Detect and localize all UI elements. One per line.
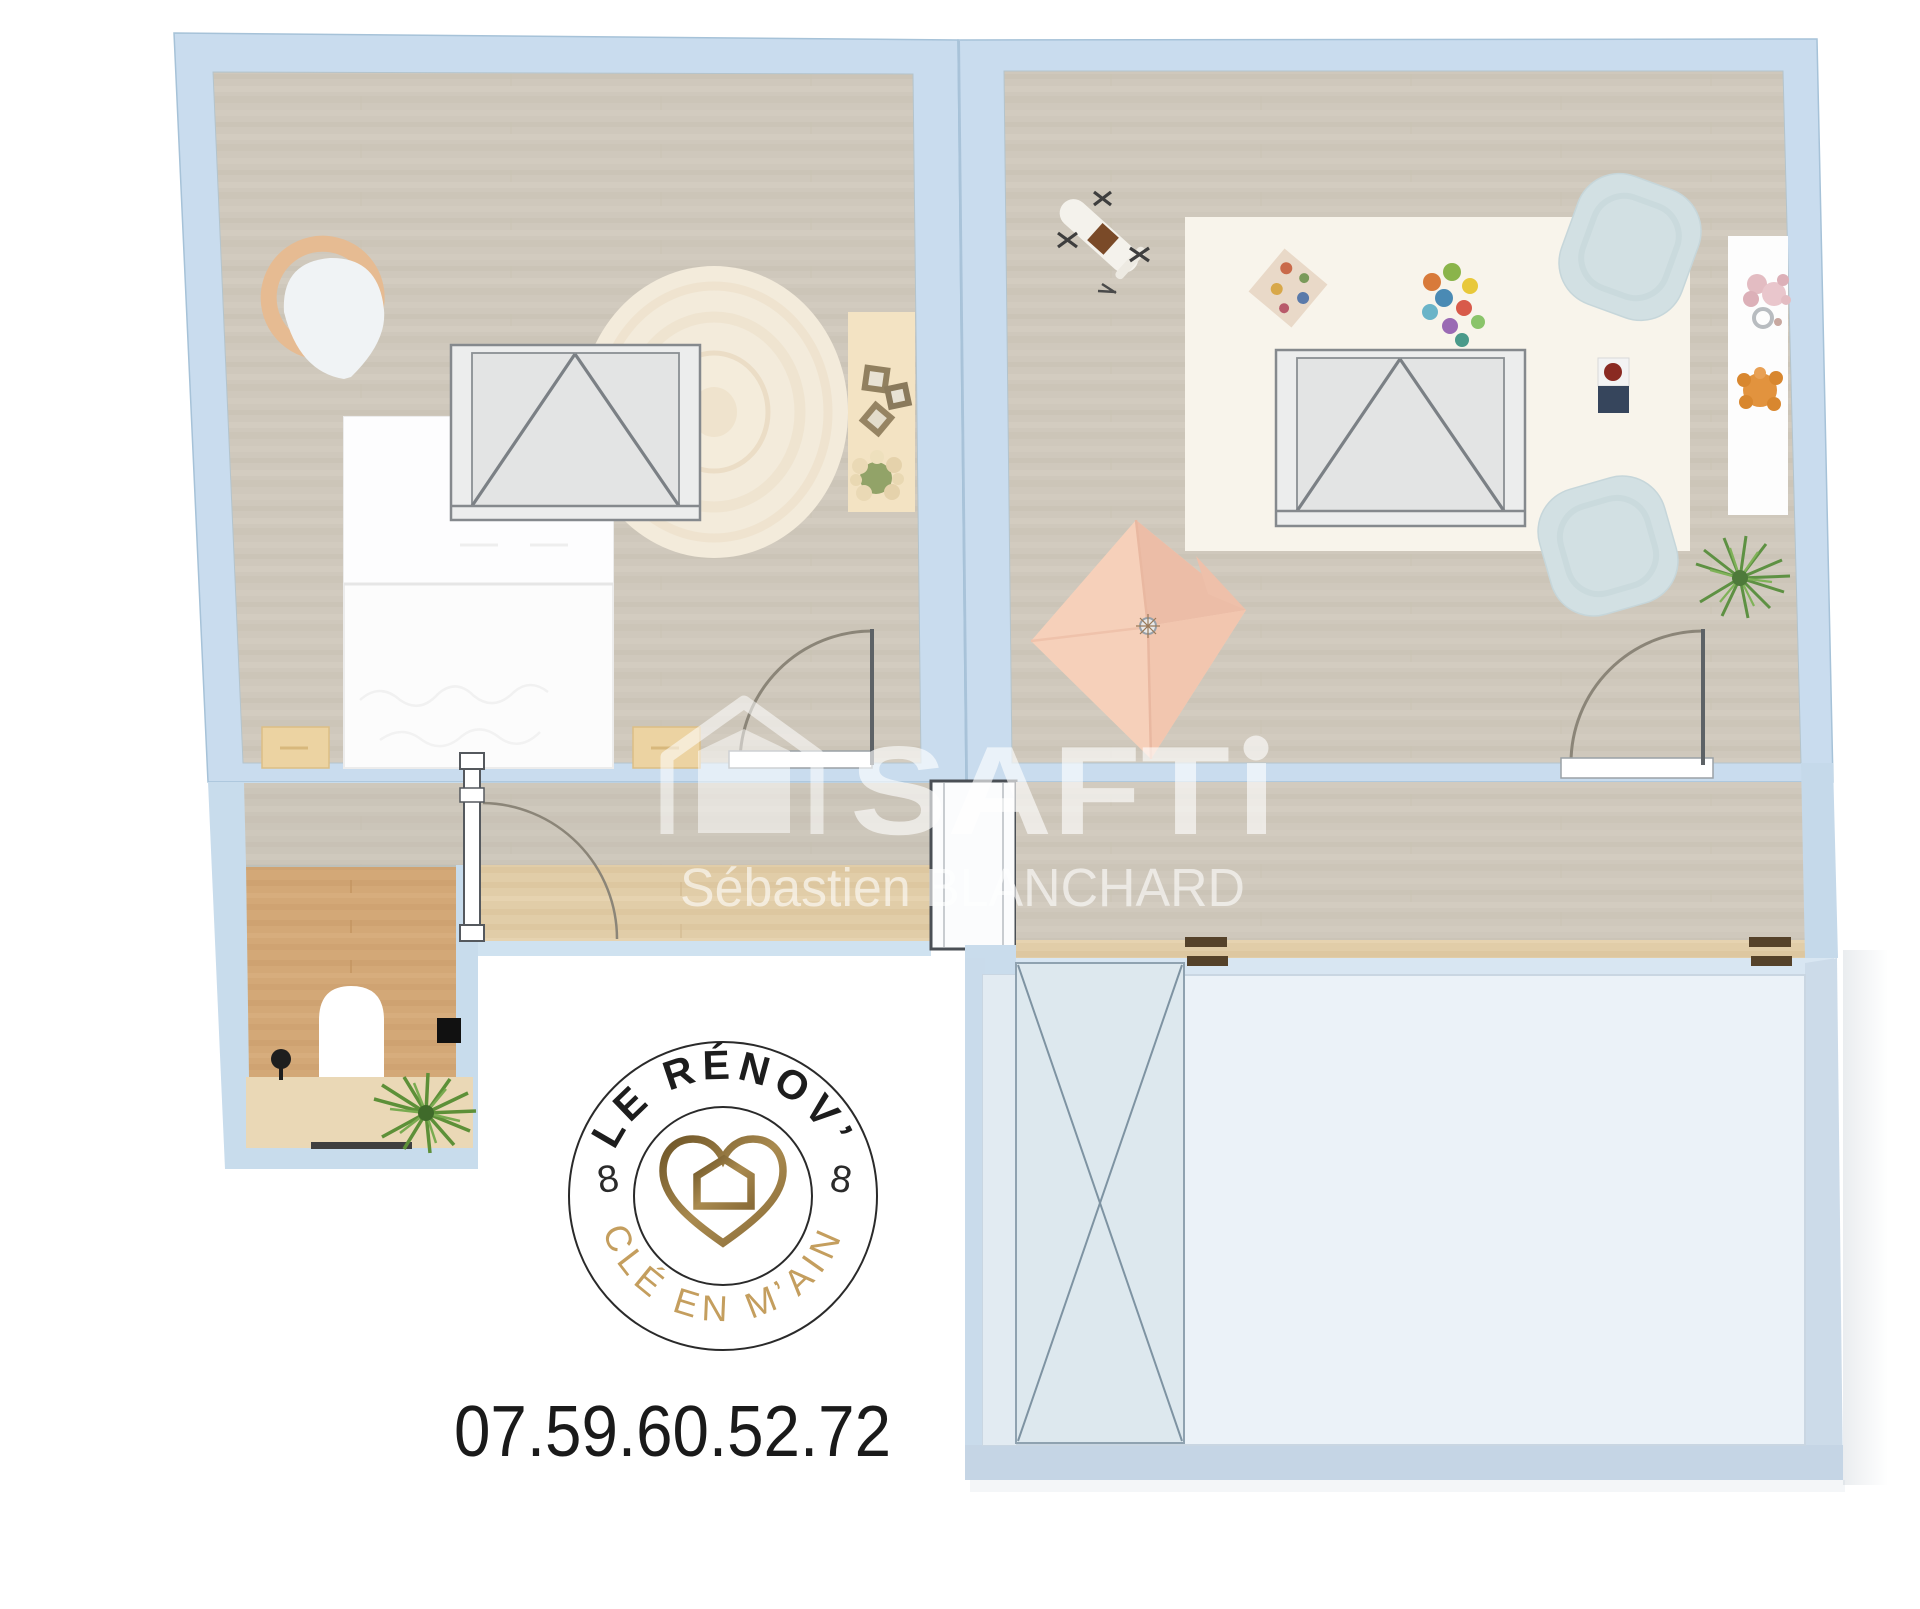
svg-text:SAFT: SAFT <box>850 720 1230 861</box>
svg-text:07.59.60.52.72: 07.59.60.52.72 <box>454 1392 891 1472</box>
svg-text:Sébastien BLANCHARD: Sébastien BLANCHARD <box>680 858 1245 918</box>
